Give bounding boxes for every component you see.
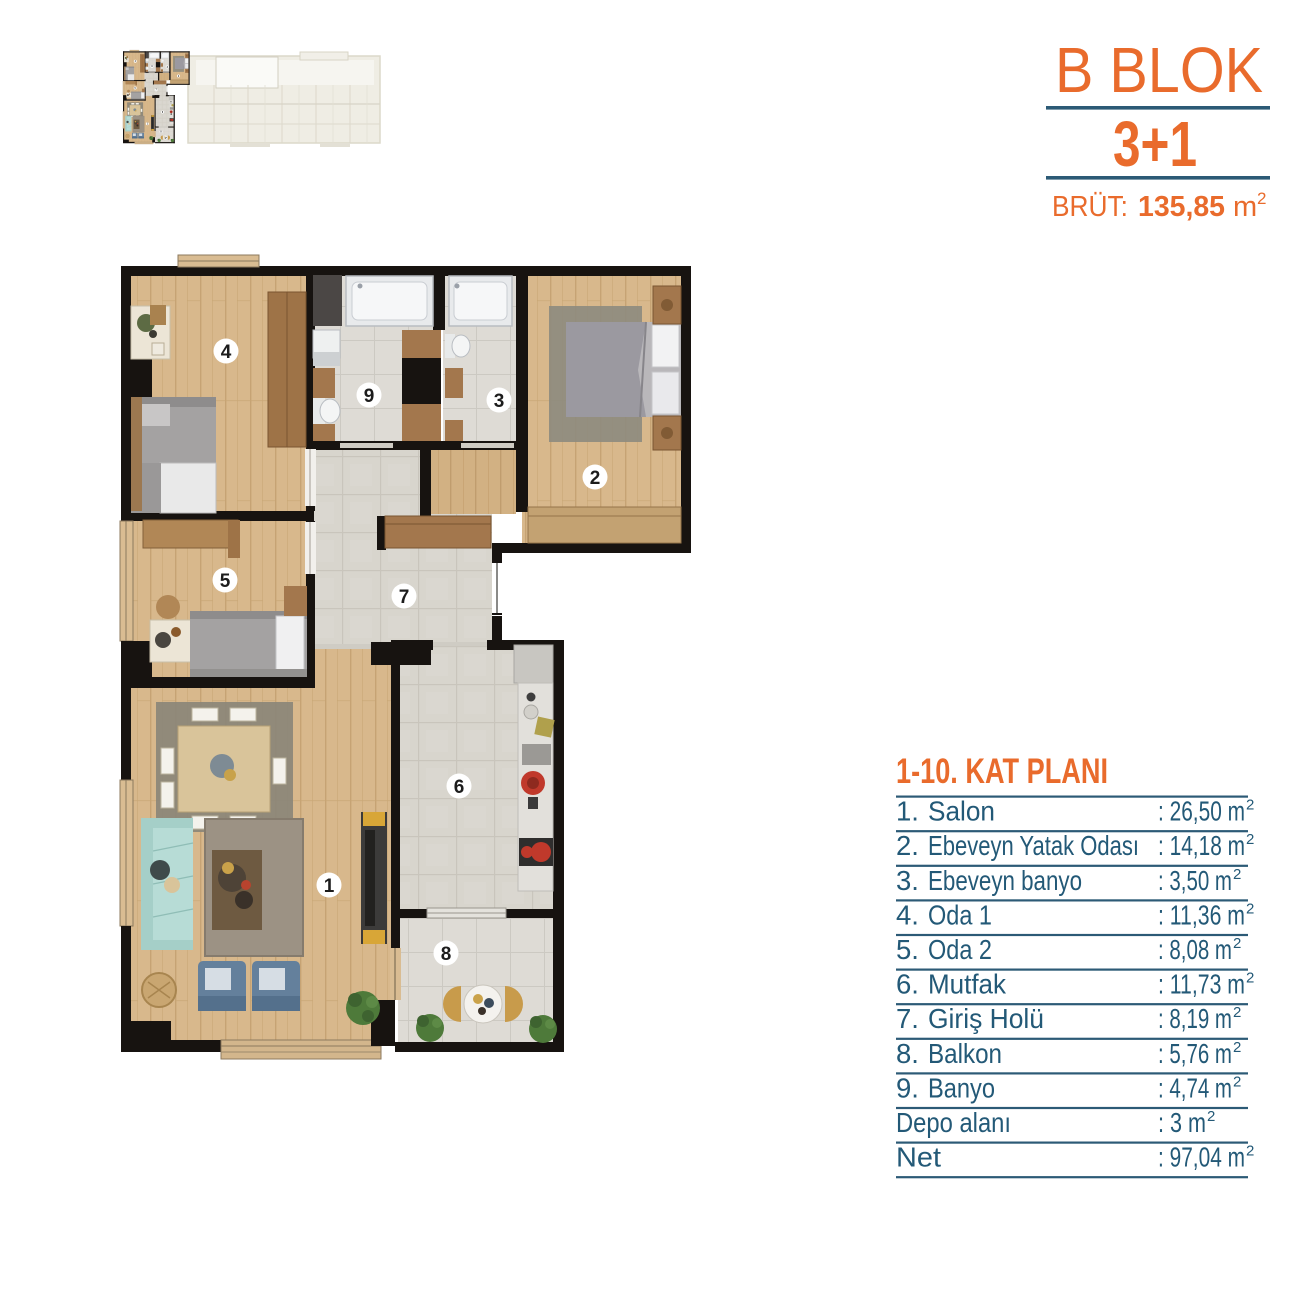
svg-text:1.: 1.: [896, 796, 919, 827]
svg-text:7.: 7.: [896, 1003, 919, 1034]
svg-text:3+1: 3+1: [1113, 108, 1197, 180]
svg-text:: 4,74 m: : 4,74 m: [1158, 1072, 1232, 1103]
svg-text:Depo alanı: Depo alanı: [896, 1107, 1011, 1138]
svg-text:Ebeveyn banyo: Ebeveyn banyo: [928, 865, 1082, 896]
svg-text:Giriş Holü: Giriş Holü: [928, 1003, 1044, 1034]
svg-text:Balkon: Balkon: [928, 1038, 1002, 1069]
svg-text:6.: 6.: [896, 969, 919, 1000]
svg-text:2: 2: [1246, 970, 1254, 987]
svg-text:Net: Net: [896, 1142, 941, 1173]
svg-text:2: 2: [1246, 797, 1254, 814]
svg-text:2: 2: [1233, 866, 1241, 883]
svg-text:5.: 5.: [896, 934, 919, 965]
svg-text:4: 4: [221, 342, 232, 363]
svg-text:7: 7: [399, 587, 410, 608]
svg-text:: 11,73 m: : 11,73 m: [1158, 969, 1245, 1000]
svg-text:2: 2: [1233, 935, 1241, 952]
svg-text:2: 2: [1246, 900, 1254, 917]
svg-text:Oda 2: Oda 2: [928, 934, 992, 965]
svg-text:: 8,08 m: : 8,08 m: [1158, 934, 1232, 965]
svg-text:9.: 9.: [896, 1072, 919, 1103]
svg-text:2: 2: [1233, 1039, 1241, 1056]
svg-text:2: 2: [1233, 1004, 1241, 1021]
svg-text:3.: 3.: [896, 865, 919, 896]
svg-text:2: 2: [1233, 1073, 1241, 1090]
svg-text:Oda 1: Oda 1: [928, 899, 992, 930]
svg-text:1: 1: [324, 876, 335, 897]
svg-text:9: 9: [364, 386, 375, 407]
svg-text:4.: 4.: [896, 899, 919, 930]
svg-text:2: 2: [590, 468, 601, 489]
svg-text:m: m: [1233, 191, 1257, 223]
svg-text:2: 2: [1207, 1108, 1215, 1125]
svg-text:: 8,19 m: : 8,19 m: [1158, 1003, 1232, 1034]
svg-text:2: 2: [1257, 189, 1266, 208]
svg-text:: 3,50 m: : 3,50 m: [1158, 865, 1232, 896]
svg-text:2: 2: [1246, 831, 1254, 848]
svg-text:Mutfak: Mutfak: [928, 969, 1006, 1000]
svg-text:Salon: Salon: [928, 796, 995, 827]
svg-text:: 11,36 m: : 11,36 m: [1158, 899, 1245, 930]
svg-text:: 97,04 m: : 97,04 m: [1158, 1142, 1245, 1173]
svg-text:1-10. KAT PLANI: 1-10. KAT PLANI: [896, 752, 1108, 791]
svg-text:: 14,18 m: : 14,18 m: [1158, 830, 1245, 861]
svg-text:2: 2: [1246, 1143, 1254, 1160]
svg-text:BRÜT:: BRÜT:: [1052, 191, 1128, 223]
svg-text:8: 8: [441, 944, 452, 965]
svg-text:2.: 2.: [896, 830, 919, 861]
svg-text:B BLOK: B BLOK: [1055, 34, 1263, 106]
svg-text:Banyo: Banyo: [928, 1072, 995, 1103]
svg-text:Ebeveyn Yatak Odası: Ebeveyn Yatak Odası: [928, 830, 1139, 861]
svg-text:135,85: 135,85: [1138, 191, 1225, 223]
svg-text:: 5,76 m: : 5,76 m: [1158, 1038, 1232, 1069]
svg-text:5: 5: [220, 571, 231, 592]
svg-text:: 3 m: : 3 m: [1158, 1107, 1206, 1138]
svg-text:: 26,50 m: : 26,50 m: [1158, 796, 1245, 827]
svg-text:8.: 8.: [896, 1038, 919, 1069]
svg-text:6: 6: [454, 777, 465, 798]
svg-text:3: 3: [494, 391, 505, 412]
